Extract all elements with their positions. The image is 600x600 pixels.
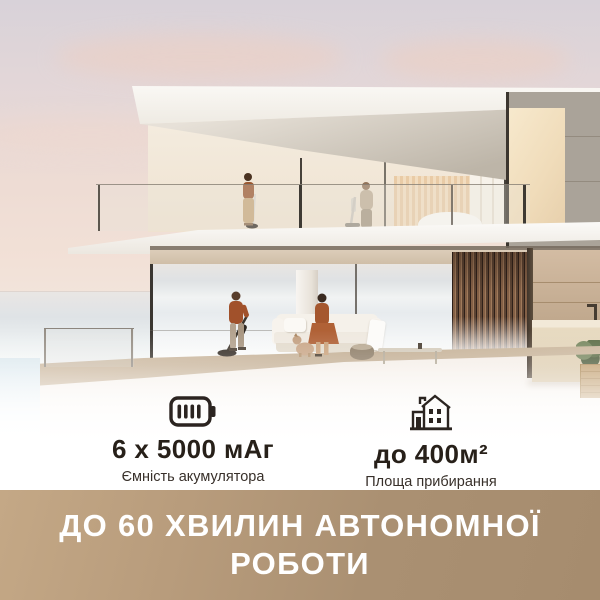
banner-line-1: ДО 60 ХВИЛИН АВТОНОМНОЇ <box>59 507 540 545</box>
railing-post <box>98 185 100 231</box>
battery-feature: 6 х 5000 мАг Ємність акумулятора <box>88 396 298 487</box>
battery-caption: Ємність акумулятора <box>88 468 298 487</box>
wall-joint <box>533 282 600 283</box>
balcony-glass-railing <box>96 184 530 231</box>
house-icon <box>408 392 454 432</box>
wall-joint <box>533 302 600 303</box>
advertisement: 6 х 5000 мАг Ємність акумулятора до 400м… <box>0 0 600 600</box>
kitchen-wall <box>533 250 600 322</box>
battery-value: 6 х 5000 мАг <box>88 434 298 465</box>
kitchen-faucet <box>594 304 597 320</box>
area-value: до 400м² <box>326 439 536 470</box>
railing-post <box>299 185 302 231</box>
cloud <box>380 40 570 80</box>
headline-banner: ДО 60 ХВИЛИН АВТОНОМНОЇ РОБОТИ <box>0 490 600 600</box>
cloud <box>55 34 345 80</box>
battery-icon <box>169 396 217 427</box>
railing-post <box>451 185 453 231</box>
banner-line-2: РОБОТИ <box>230 545 370 583</box>
